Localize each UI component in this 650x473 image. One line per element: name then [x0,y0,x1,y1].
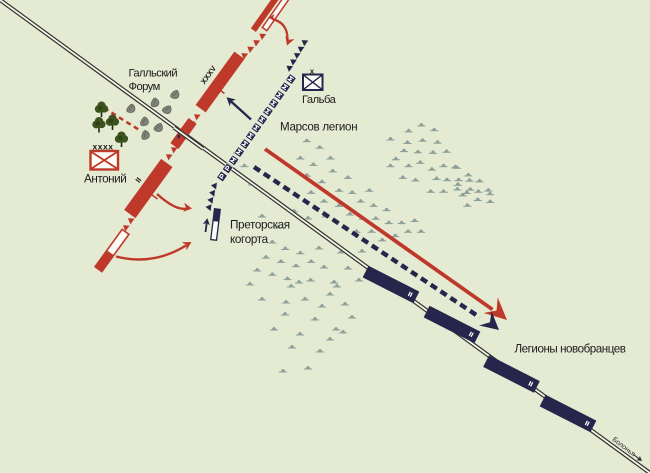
svg-text:Гальба: Гальба [302,94,337,106]
svg-text:Галльский: Галльский [129,68,178,80]
svg-text:Антоний: Антоний [84,173,126,186]
svg-text:Легионы новобранцев: Легионы новобранцев [515,343,626,356]
svg-text:когорта: когорта [230,233,269,246]
svg-text:Форум: Форум [129,81,160,93]
svg-text:Преторская: Преторская [230,219,290,232]
svg-text:Марсов легион: Марсов легион [280,121,357,134]
